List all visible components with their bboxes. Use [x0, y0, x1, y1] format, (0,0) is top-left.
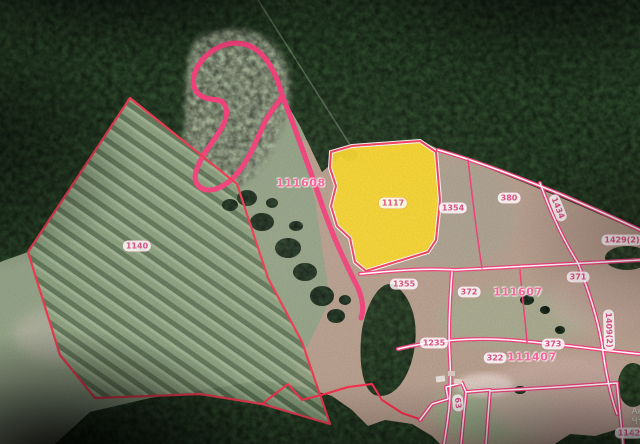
photo-grain-overlay — [0, 0, 640, 444]
screen-photo-of-cadastral-map: 111608 111607 111407 1117 1354 380 1429(… — [0, 0, 640, 444]
cadastral-map-canvas[interactable] — [0, 0, 640, 444]
